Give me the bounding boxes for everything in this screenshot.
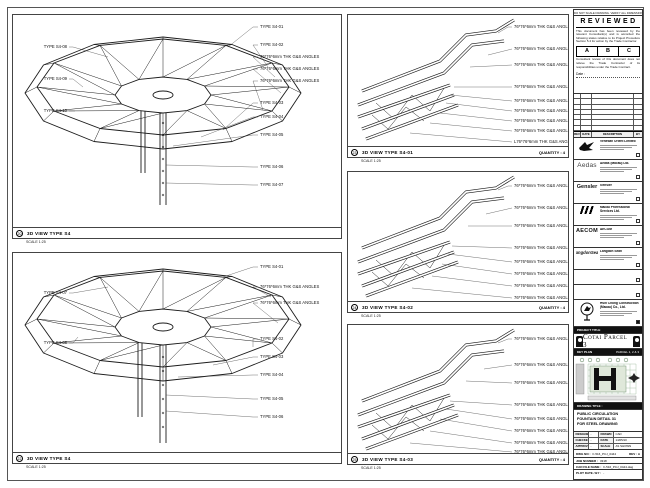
company-address [600, 215, 640, 220]
member-label: 76*76*6mm THK G&S ANGLES [514, 336, 568, 341]
company-address [600, 311, 640, 316]
member-label: TYPE S4-04 [260, 114, 284, 119]
venetian-orient-eagle-icon [576, 140, 598, 152]
member-label: 76*76*6mm THK G&S ANGLES [514, 271, 568, 276]
consultant-row-macau-professional: Macau Professional Services Ltd. [574, 204, 642, 226]
canopy-isometric-drawing: TYPE S4-01 TYPE S4-02 76*76*6mm THK G&S … [13, 15, 341, 227]
view-title-bar: 25 3D VIEW TYPE S4-03 QUANTITY : 4 [348, 453, 568, 464]
member-label: 76*76*6mm THK G&S ANGLES [514, 46, 568, 51]
member-label: 76*76*6mm THK G&S ANGLES [514, 428, 568, 433]
consultant-row-blank-2 [574, 285, 642, 300]
reviewed-title: REVIEWED [576, 17, 640, 28]
company-address [600, 167, 640, 172]
parcel-label: PARCEL 1, 2 & 3 [616, 350, 639, 354]
macau-professional-services-logo [576, 206, 598, 214]
member-label: 76*76*6mm THK G&S ANGLES [514, 98, 568, 103]
detail-marker-icon: 23 [351, 149, 358, 156]
drawing-title-bar: DRAWING TITLE : [574, 403, 642, 410]
member-label: 76*76*6mm THK G&S ANGLES [514, 108, 568, 113]
status-checkbox [636, 153, 641, 158]
date-label: DATE [599, 438, 614, 443]
contractor-row-hsin-chong: Hsin Chong Construction (Macau) Co., Ltd… [574, 300, 642, 327]
member-label: 76*76*6mm THK G&S ANGLES [260, 300, 319, 305]
viewport-3d-view-type-s4-lower: TYPE S4-01 76*76*6mm THK G&S ANGLES 76*7… [12, 252, 342, 469]
view-title: 3D VIEW TYPE S4-01 [362, 150, 413, 155]
member-label: TYPE S4-05 [260, 396, 284, 401]
job-number-label: JOB NUMBER : [576, 459, 598, 463]
member-label: 76*76*6mm THK G&S ANGLES [260, 284, 319, 289]
view-scale: SCALE 1:25 [347, 466, 569, 470]
consultant-row-aedas: Aedas Aedas (Macau) Ltd. [574, 160, 642, 182]
consultant-row-gensler: Gensler Gensler [574, 182, 642, 204]
view-title: 3D VIEW TYPE S4 [27, 231, 71, 236]
status-checkbox [636, 241, 641, 246]
revision-table-header: REV DATE DESCRIPTION BY [574, 131, 642, 137]
cad-file-label: CAD FILE NAME : [576, 465, 601, 469]
status-checkbox [636, 263, 641, 268]
member-label: TYPE S4-01 [260, 24, 284, 29]
drawing-title-line-3: FOR STEEL DRAWING [577, 422, 639, 427]
drawing-sheet: TYPE S4-01 TYPE S4-02 76*76*6mm THK G&S … [0, 0, 650, 488]
member-label: TYPE S4-05 [260, 132, 284, 137]
canopy-isometric-drawing: TYPE S4-01 76*76*6mm THK G&S ANGLES 76*7… [13, 253, 341, 452]
member-label: 76*76*6mm THK G&S ANGLES [514, 205, 568, 210]
checked-label: CHECKED [574, 438, 589, 443]
member-label: TYPE S4-03 [260, 100, 284, 105]
member-label: 76*76*6mm THK G&S ANGLES [514, 283, 568, 288]
ornament-emblem-icon [633, 336, 640, 347]
designed-label: DESIGNED [574, 432, 589, 437]
scale-value: AS SHOWN [614, 444, 642, 449]
detail-marker-icon: 24 [351, 304, 358, 311]
reviewed-body: This document has been reviewed by the r… [576, 30, 640, 44]
company-address [600, 145, 640, 150]
member-label: TYPE S4-07 [44, 290, 68, 295]
member-label: 76*76*6mm THK G&S ANGLES [514, 380, 568, 385]
status-checkbox [636, 175, 641, 180]
key-plan-bar: KEY PLAN PARCEL 1, 2 & 3 [574, 349, 642, 356]
member-label: 76*76*6mm THK G&S ANGLES [514, 223, 568, 228]
dwg-no-row: DWG NO : F-516_PCJ_0444 REV : A [574, 450, 642, 458]
dwg-no-label: DWG NO : [576, 452, 591, 456]
company-name: Venetian Orient Limited [600, 140, 640, 144]
quantity-note: QUANTITY : 4 [539, 457, 565, 462]
scale-label: SCALE [599, 444, 614, 449]
truss-member-drawing: 76*76*6mm THK G&S ANGLES 76*76*6mm THK G… [348, 15, 568, 146]
member-label: 76*76*6mm THK G&S ANGLES [514, 259, 568, 264]
view-scale: SCALE 1:25 [12, 240, 342, 244]
member-label: TYPE S4-10 [44, 108, 68, 113]
status-checkbox [636, 197, 641, 202]
job-number-value: 3318 [600, 459, 607, 463]
detail-marker-icon: 25 [351, 456, 358, 463]
detail-marker-icon: 22 [16, 455, 23, 462]
member-label: TYPE S4-06 [260, 414, 284, 419]
grade-a: A [577, 47, 598, 56]
member-label: TYPE S4-09 [44, 76, 68, 81]
viewport-3d-view-type-s4-03: 76*76*6mm THK G&S ANGLES 76*76*6mm THK G… [347, 324, 569, 470]
truss-member-drawing: 76*76*6mm THK G&S ANGLES 76*76*6mm THK G… [348, 172, 568, 301]
plot-date-label: PLOT DATE / BY : [576, 471, 601, 475]
consultant-row-aecom: AECOM AECOM [574, 226, 642, 248]
revision-col-by: BY [634, 132, 642, 137]
cad-file-value: F-516_PCJ_0444.dwg [603, 465, 633, 469]
viewport-3d-view-type-s4-01: 76*76*6mm THK G&S ANGLES 76*76*6mm THK G… [347, 14, 569, 163]
approved-value: - [589, 444, 599, 449]
member-label: TYPE S4-01 [260, 264, 284, 269]
company-name: Hsin Chong Construction (Macau) Co., Ltd… [600, 302, 640, 309]
truss-member-drawing: 76*76*6mm THK G&S ANGLES 76*76*6mm THK G… [348, 325, 568, 453]
view-title: 3D VIEW TYPE S4 [27, 456, 71, 461]
viewport-3d-view-type-s4-02: 76*76*6mm THK G&S ANGLES 76*76*6mm THK G… [347, 171, 569, 318]
status-checkbox [636, 293, 641, 298]
member-label: 76*76*6mm THK G&S ANGLES [514, 24, 568, 29]
aedas-logo: Aedas [576, 162, 598, 169]
langdon-seah-logo: LangdonSeah [576, 250, 598, 255]
revision-col-desc: DESCRIPTION [592, 132, 634, 137]
view-scale: SCALE 1:25 [347, 314, 569, 318]
member-label: 76*76*6mm THK G&S ANGLES [514, 362, 568, 367]
status-checkbox [636, 320, 641, 325]
gensler-logo: Gensler [576, 184, 598, 190]
viewport-3d-view-type-s4-upper: TYPE S4-01 TYPE S4-02 76*76*6mm THK G&S … [12, 14, 342, 244]
member-label: 76*76*6mm THK G&S ANGLES [514, 128, 568, 133]
member-label: TYPE S4-03 [260, 354, 284, 359]
member-label: 76*76*6mm THK G&S ANGLES [514, 295, 568, 300]
member-label: 76*76*6mm THK G&S ANGLES [514, 440, 568, 445]
member-label: 76*76*6mm THK G&S ANGLES [514, 245, 568, 250]
company-address [600, 255, 640, 260]
member-label: L76*76*6mm THK G&S ANGLES [514, 139, 568, 144]
approved-label: APPROVED [574, 444, 589, 449]
key-plan-map [574, 356, 642, 403]
member-label: TYPE S4-07 [260, 182, 284, 187]
member-label: 76*76*6mm THK G&S ANGLES [260, 78, 319, 83]
member-label: TYPE S4-02 [260, 336, 284, 341]
plot-date-row: PLOT DATE / BY : - [574, 470, 642, 476]
view-scale: SCALE 1:25 [347, 159, 569, 163]
contractor-rooster-emblem-icon [576, 302, 598, 322]
company-name: Aedas (Macau) Ltd. [600, 162, 640, 166]
date-value: 14/05/10 [614, 438, 642, 443]
view-title-bar: 22 3D VIEW TYPE S4 [13, 452, 341, 463]
grade-c: C [619, 47, 639, 56]
project-name: Cotai Parcel 3 [583, 333, 633, 349]
reviewed-body-2: Consultant review of this document does … [576, 58, 640, 69]
plot-date-value: - [603, 471, 604, 475]
detail-marker-icon: 20 [16, 230, 23, 237]
drawn-label: DRAWN [599, 432, 614, 437]
company-name: Macau Professional Services Ltd. [600, 206, 640, 213]
member-label: 76*76*6mm THK G&S ANGLES [514, 402, 568, 407]
member-label: TYPE S4-02 [260, 42, 284, 47]
view-title-bar: 24 3D VIEW TYPE S4-02 QUANTITY : 4 [348, 301, 568, 312]
view-scale: SCALE 1:25 [12, 465, 342, 469]
rev-value: REV : A [629, 452, 640, 456]
ornament-emblem-icon [576, 336, 583, 347]
date-line: Date : [576, 72, 640, 78]
drawn-value: CAD [614, 432, 642, 437]
revision-col-rev: REV [574, 132, 581, 137]
project-title-label: PROJECT TITLE [577, 328, 600, 332]
title-block: DO NOT SCALE DRAWING. VERIFY ALL DIMENSI… [573, 9, 643, 480]
company-name: Langdon Seah [600, 250, 640, 254]
aecom-logo: AECOM [576, 228, 598, 234]
view-title-bar: 23 3D VIEW TYPE S4-01 QUANTITY : 4 [348, 146, 568, 157]
drawing-title-label: DRAWING TITLE : [577, 404, 603, 408]
drawing-title: PUBLIC CIRCULATION FOUNTAIN DETAIL 31 FO… [574, 410, 642, 432]
consultant-row-blank-1 [574, 270, 642, 285]
member-label: TYPE S4-04 [260, 372, 284, 377]
member-label: 76*76*6mm THK G&S ANGLES [260, 54, 319, 59]
view-title-bar: 20 3D VIEW TYPE S4 [13, 227, 341, 238]
company-name: AECOM [600, 228, 640, 232]
consultant-row-langdon-seah: LangdonSeah Langdon Seah [574, 248, 642, 270]
review-grade-boxes: A B C [576, 46, 640, 57]
quantity-note: QUANTITY : 4 [539, 150, 565, 155]
revision-col-date: DATE [581, 132, 592, 137]
member-label: TYPE S4-08 [44, 340, 68, 345]
key-plan-label: KEY PLAN [577, 350, 592, 354]
drawing-info-table: DESIGNED - DRAWN CAD CHECKED - DATE 14/0… [574, 432, 642, 450]
member-label: 76*76*6mm THK G&S ANGLES [514, 84, 568, 89]
dwg-no-value: F-516_PCJ_0444 [593, 452, 617, 456]
member-label: 76*76*6mm THK G&S ANGLES [514, 62, 568, 67]
grade-b: B [598, 47, 619, 56]
member-label: 76*76*6mm THK G&S ANGLES [260, 66, 319, 71]
company-address [600, 189, 640, 194]
company-address [600, 233, 640, 238]
member-label: 76*76*6mm THK G&S ANGLES [514, 118, 568, 123]
member-label: 76*76*6mm THK G&S ANGLES [514, 183, 568, 188]
member-label: TYPE S4-08 [44, 44, 68, 49]
member-label: TYPE S4-06 [260, 164, 284, 169]
member-label: 76*76*6mm THK G&S ANGLES [514, 416, 568, 421]
view-title: 3D VIEW TYPE S4-03 [362, 457, 413, 462]
reviewed-stamp: REVIEWED This document has been reviewed… [574, 16, 642, 94]
revision-table: REV DATE DESCRIPTION BY [574, 94, 642, 138]
designed-value: - [589, 432, 599, 437]
quantity-note: QUANTITY : 4 [539, 305, 565, 310]
status-checkbox [636, 278, 641, 283]
checked-value: - [589, 438, 599, 443]
project-title-row: Cotai Parcel 3 [574, 334, 642, 349]
company-name: Gensler [600, 184, 640, 188]
status-checkbox [636, 219, 641, 224]
consultant-row-venetian: Venetian Orient Limited [574, 138, 642, 160]
view-title: 3D VIEW TYPE S4-02 [362, 305, 413, 310]
